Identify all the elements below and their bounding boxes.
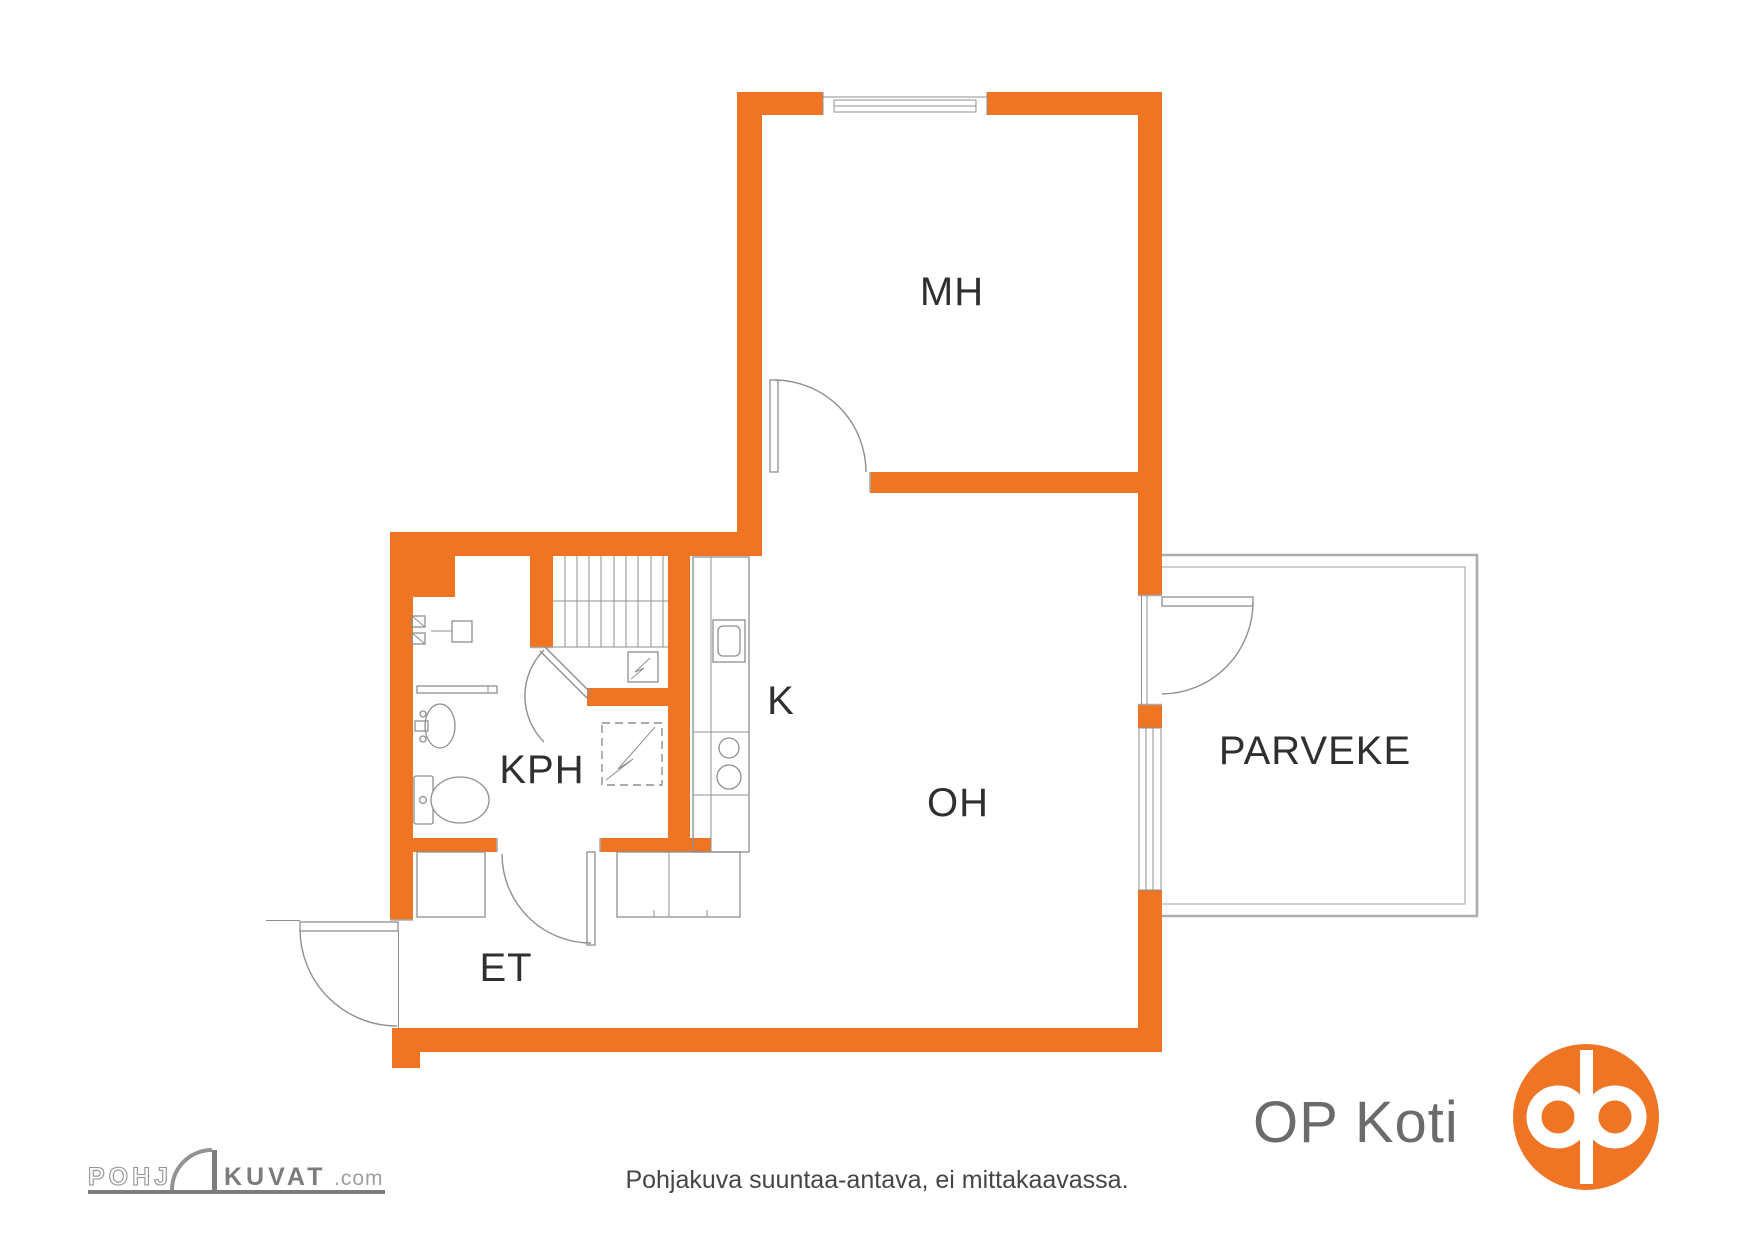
wall-stairs-kph [530, 556, 553, 647]
wall-pilaster [413, 556, 455, 597]
pohjakuvat-main: KUVAT [224, 1163, 326, 1191]
op-logo-icon [1513, 1044, 1659, 1190]
mh-window [823, 92, 987, 115]
pohjakuvat-logo: POHJ KUVAT .com [88, 1150, 385, 1194]
toilet-icon [414, 776, 489, 824]
room-labels: MH OH K KPH ET PARVEKE [479, 270, 1411, 990]
wall-kph-stub [587, 688, 668, 706]
wall-bottom-left-foot [392, 1028, 420, 1068]
kitchen-sink-icon [713, 620, 745, 662]
entry-door [300, 922, 398, 1026]
room-label-et: ET [479, 946, 532, 990]
electrical-panel-icon [628, 652, 658, 682]
wall-right-upper [1138, 92, 1162, 595]
door-arc-icon [172, 1150, 215, 1190]
walls [390, 92, 1162, 1068]
room-label-k: K [767, 679, 795, 723]
room-label-oh: OH [927, 781, 989, 825]
pohjakuvat-underline [88, 1190, 385, 1194]
pohjakuvat-prefix: POHJ [88, 1163, 172, 1191]
wall-stub-right [600, 838, 711, 852]
room-label-parveke: PARVEKE [1219, 729, 1411, 773]
room-label-mh: MH [920, 270, 984, 314]
floor-plan-page: MH OH K KPH ET PARVEKE Pohjakuva suuntaa… [0, 0, 1754, 1241]
op-koti-logo: OP Koti [1253, 1044, 1659, 1190]
disclaimer-text: Pohjakuva suuntaa-antava, ei mittakaavas… [625, 1166, 1128, 1194]
stairs [553, 556, 668, 647]
stove-icon [717, 738, 741, 789]
wall-mh-oh-divider [870, 472, 1162, 493]
wall-kitchen-top [390, 532, 762, 556]
wall-left-exterior [390, 532, 413, 920]
kph-et-door [502, 852, 595, 945]
washing-machine-icon [412, 616, 472, 644]
wall-bottom [392, 1028, 1162, 1052]
shelf-icon [417, 686, 497, 693]
floor-plan-drawing: MH OH K KPH ET PARVEKE Pohjakuva suuntaa… [0, 0, 1754, 1241]
mh-door [770, 380, 866, 472]
pohjakuvat-suffix: .com [334, 1167, 384, 1190]
wall-right-mid-block [1138, 705, 1162, 728]
kitchen-counter [693, 557, 749, 852]
water-heater-icon [602, 723, 662, 785]
oh-window [1139, 728, 1161, 890]
closets-east [617, 852, 740, 917]
washbasin-icon [415, 704, 455, 748]
wall-right-lower [1138, 890, 1162, 1052]
room-label-kph: KPH [499, 748, 584, 792]
wall-top-right-segment [987, 92, 1162, 115]
balcony-door [1142, 595, 1254, 705]
closet-west [417, 852, 485, 917]
wall-kitchen-divider [668, 556, 690, 852]
wall-kph-bottom [413, 838, 497, 852]
kph-door [525, 647, 592, 742]
op-koti-wordmark: OP Koti [1253, 1090, 1459, 1155]
wall-mh-left [737, 92, 762, 556]
